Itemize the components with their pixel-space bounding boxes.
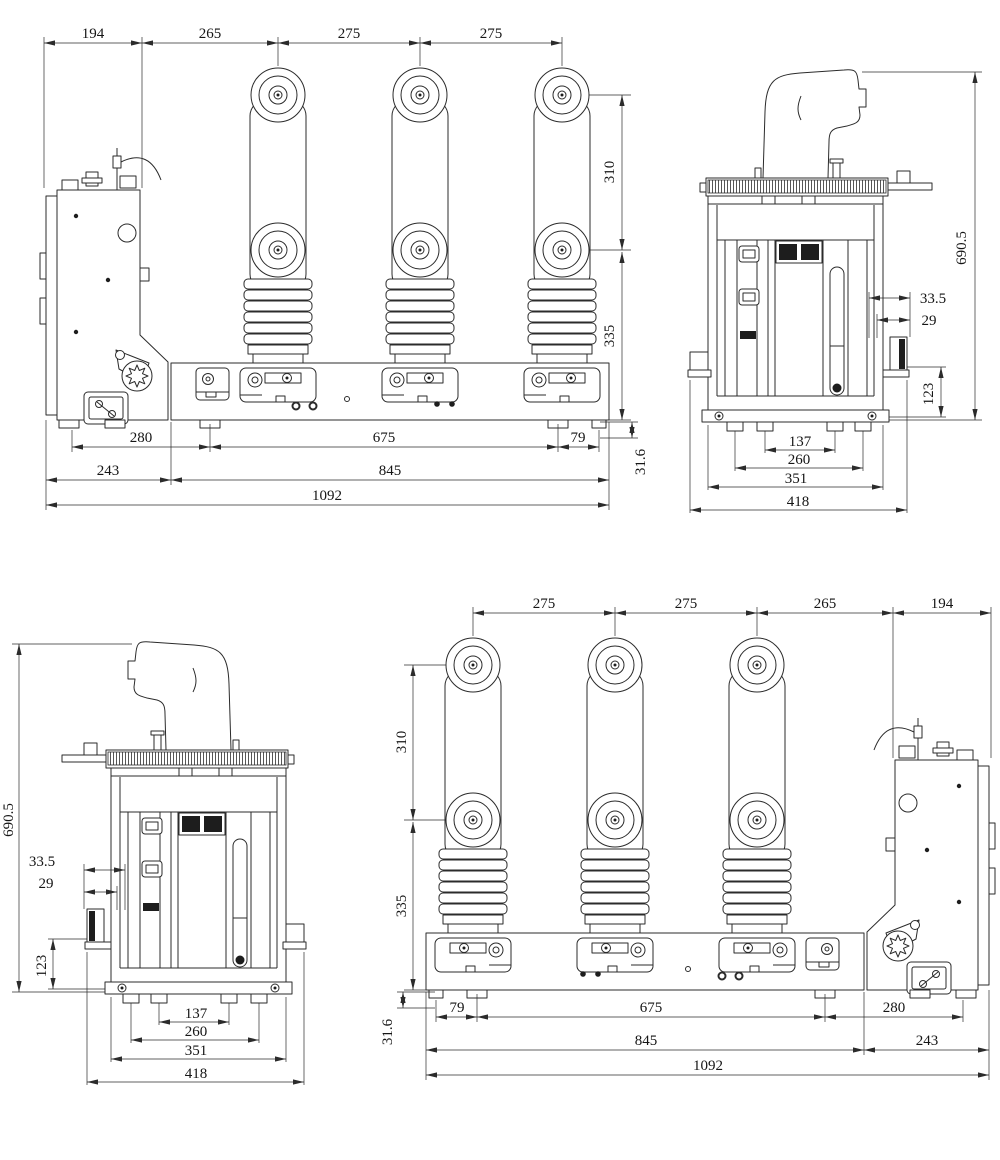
dim-label: 265: [199, 26, 222, 42]
dim-label: 260: [185, 1024, 208, 1040]
dim-label: 1092: [312, 488, 342, 504]
dim-label: 690.5: [1, 803, 17, 837]
dim-label: 137: [185, 1006, 208, 1022]
dim-label: 265: [814, 596, 837, 612]
front-view-bottom-right: 275 275 265 194 310 335 79 675 280 845 2…: [380, 596, 995, 1080]
side-view-bottom-left: 690.5 33.5 29 123 137 260 351 418: [1, 642, 306, 1085]
dim-label: 243: [916, 1033, 939, 1049]
front-view-top-left: 194 265 275 275 310 335 280 675 79 243 8…: [40, 26, 649, 510]
dim-label: 335: [394, 895, 410, 918]
dim-label: 418: [787, 494, 810, 510]
dim-label: 33.5: [920, 291, 946, 307]
dim-label: 280: [130, 430, 153, 446]
dim-label: 29: [922, 313, 937, 329]
dim-label: 310: [602, 161, 618, 184]
dim-label: 418: [185, 1066, 208, 1082]
dim-label: 33.5: [29, 854, 55, 870]
dim-label: 845: [635, 1033, 658, 1049]
dim-label: 123: [921, 383, 937, 406]
dim-label: 1092: [693, 1058, 723, 1074]
dim-label: 351: [185, 1043, 208, 1059]
dim-label: 31.6: [633, 448, 649, 475]
dim-label: 310: [394, 731, 410, 754]
dim-label: 275: [533, 596, 556, 612]
dim-label: 123: [34, 955, 50, 978]
dim-label: 335: [602, 325, 618, 348]
dim-label: 275: [480, 26, 503, 42]
dim-label: 243: [97, 463, 120, 479]
dim-label: 675: [640, 1000, 663, 1016]
dim-label: 351: [785, 471, 808, 487]
dim-label: 29: [39, 876, 54, 892]
dim-label: 845: [379, 463, 402, 479]
dim-label: 194: [82, 26, 105, 42]
dim-label: 280: [883, 1000, 906, 1016]
dim-label: 137: [789, 434, 812, 450]
side-view-top-right: 690.5 33.5 29 123 137 260 351 418: [688, 70, 982, 513]
dim-label: 275: [675, 596, 698, 612]
technical-drawing-page: 194 265 275 275 310 335 280 675 79 243 8…: [0, 0, 1000, 1160]
dim-label: 690.5: [954, 231, 970, 265]
circuit-breaker-dimension-drawing: 194 265 275 275 310 335 280 675 79 243 8…: [0, 0, 1000, 1160]
dim-label: 675: [373, 430, 396, 446]
dim-label: 260: [788, 452, 811, 468]
dim-label: 79: [450, 1000, 465, 1016]
dim-label: 194: [931, 596, 954, 612]
dim-label: 31.6: [380, 1018, 396, 1045]
dim-label: 79: [571, 430, 586, 446]
dim-label: 275: [338, 26, 361, 42]
